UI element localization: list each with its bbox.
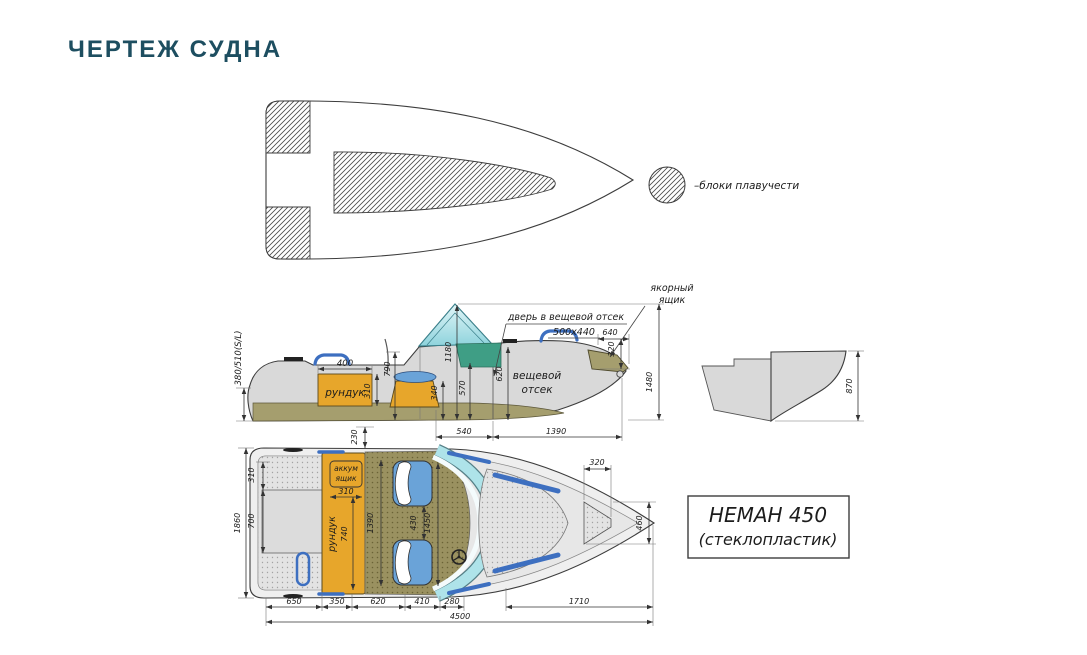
dim-text: 650: [286, 597, 301, 606]
transom-fitting-top: [283, 448, 303, 452]
boat-drawing: –блоки плавучести рундук вещевой отсек: [0, 0, 1087, 655]
dim-text: 310: [338, 487, 353, 496]
dim-text: 230: [350, 429, 359, 444]
locker-side-label: рундук: [324, 387, 365, 399]
dim-text: 570: [458, 380, 467, 395]
dim-text: 430: [409, 515, 418, 530]
dim-text: 540: [456, 427, 471, 436]
dim-text: 320: [589, 458, 604, 467]
dim-text: 1480: [645, 372, 654, 392]
dim-text: 410: [414, 597, 429, 606]
model-label: НЕМАН 450 (стеклопластик): [688, 496, 849, 558]
model-name: НЕМАН 450: [709, 503, 827, 527]
seat-plan-2: [393, 540, 432, 585]
legend: –блоки плавучести: [649, 167, 799, 203]
door-handle-side: [503, 339, 517, 343]
flotation-block-stern-bottom: [266, 207, 310, 259]
stowage-label-2: отсек: [521, 384, 553, 396]
anchor-label-2: ящик: [659, 295, 686, 306]
bow-eye: [617, 371, 623, 377]
dim-text: 460: [635, 515, 644, 530]
dim-text: 380/510(S/L): [234, 331, 244, 386]
dim-text: 1390: [546, 427, 566, 436]
dim-text: 340: [430, 385, 439, 400]
door-size-label: 500x440: [553, 327, 595, 338]
dim-text: 1860: [233, 513, 242, 533]
stern-hatch-handle: [284, 357, 303, 361]
stowage-label-1: вещевой: [513, 370, 562, 382]
door-label: дверь в вещевой отсек: [507, 312, 625, 323]
dim-text: 350: [329, 597, 344, 606]
flotation-block-stern-top: [266, 101, 310, 153]
transom-view: 870: [702, 351, 864, 421]
seat-cushion-side: [394, 372, 436, 383]
plan-view: аккум ящик 310 рундук 740: [233, 427, 656, 626]
dim-text: 640: [602, 328, 617, 337]
battery-label-2: ящик: [336, 474, 357, 483]
dim-text: 310: [363, 383, 372, 398]
side-view: рундук вещевой отсек 380/510(S/L): [234, 283, 694, 441]
dim-text: 620: [495, 366, 504, 381]
top-view: [266, 101, 633, 259]
motor-well: [262, 490, 322, 553]
transom-rear-panel: [702, 359, 771, 421]
console-side: [456, 343, 501, 367]
legend-flotation-circle: [649, 167, 685, 203]
dim-text: 700: [247, 513, 256, 528]
locker-plan-label: рундук: [327, 516, 338, 553]
anchor-label-1: якорный: [650, 283, 693, 294]
dim-text: 870: [845, 378, 854, 393]
dim-text: 1450: [423, 513, 432, 533]
dim-text: 790: [383, 361, 392, 376]
dim-text: 310: [247, 467, 256, 482]
dim-text: 1710: [569, 597, 589, 606]
legend-label: –блоки плавучести: [694, 180, 799, 192]
dim-text: 1390: [366, 513, 375, 533]
model-material: (стеклопластик): [699, 530, 838, 549]
transom-front-panel: [771, 351, 846, 421]
dim-text: 280: [444, 597, 459, 606]
dim-text: 740: [340, 526, 349, 541]
battery-label-1: аккум: [334, 464, 358, 473]
dim-text: 4500: [450, 612, 470, 621]
dim-text: 620: [370, 597, 385, 606]
dim-text: 1180: [444, 342, 453, 362]
dim-text: 400: [337, 359, 353, 369]
seat-plan-1: [393, 461, 432, 506]
drawing-sheet: ЧЕРТЕЖ СУДНА: [0, 0, 1087, 655]
